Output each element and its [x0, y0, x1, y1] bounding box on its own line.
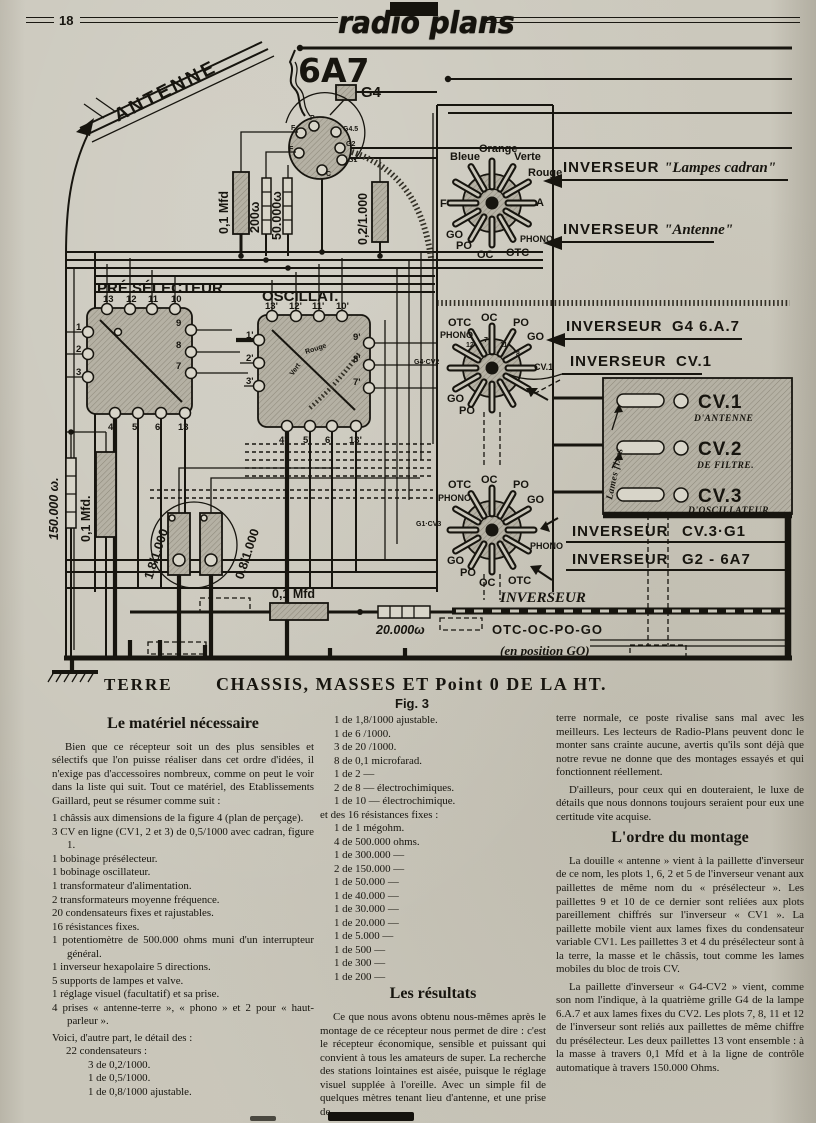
sw3-label: G1·CV3: [416, 521, 441, 528]
r150000-label: 150.000 ω.: [47, 477, 61, 540]
paragraph: Bien que ce récepteur soit un des plus s…: [52, 741, 314, 809]
paragraph: Ce que nous avons obtenu nous-mêmes aprè…: [320, 1011, 546, 1119]
oscil-pin: 8': [353, 354, 361, 365]
preselecteur-label: PRÉ SÉLECTEUR: [97, 280, 223, 297]
inverseur-cv3-detail: CV.3·G1: [682, 523, 746, 540]
sw3-label: OC: [479, 577, 496, 589]
list-item: 8 de 0,1 microfarad.: [320, 755, 546, 769]
sw3-label: OC: [481, 474, 498, 486]
sw2-num: 12: [466, 342, 474, 349]
sw2-label: CV.1: [534, 362, 553, 372]
sw3-label: GO: [447, 555, 465, 567]
sw2-label: OC: [481, 312, 498, 324]
cv1-label: CV.1: [698, 392, 743, 413]
presel-pin: 9: [176, 318, 181, 329]
presel-pin: 6: [155, 422, 160, 433]
paragraph: La douille « antenne » vient à la paille…: [556, 855, 804, 977]
r20000-label: 20.000ω: [375, 623, 425, 637]
socket-pin-g45-label: G4.5: [343, 126, 358, 133]
sw3-label: GO: [527, 494, 545, 506]
list-item: 4 de 500.000 ohms.: [320, 836, 546, 850]
sw3-label: PHONO: [530, 541, 563, 551]
arrow-underline: [543, 174, 788, 188]
sw2-num: 8: [516, 351, 520, 358]
list-item: 1 inverseur hexapolaire 5 directions.: [52, 961, 314, 975]
list-item: 1 de 0,5/1000.: [52, 1072, 314, 1086]
cv3-sub-label: D'OSCILLATEUR: [687, 506, 769, 516]
list-item: 1 de 0,8/1000 ajustable.: [52, 1086, 314, 1100]
inverseur-antenne-detail: "Antenne": [664, 222, 733, 238]
res-heading: et des 16 résistances fixes :: [320, 809, 546, 823]
list-item: 1 châssis aux dimensions de la figure 4 …: [52, 812, 314, 826]
cv1-sub-label: D'ANTENNE: [693, 414, 753, 424]
oscil-pin: 10': [336, 301, 349, 312]
presel-pin: 7: [176, 361, 181, 372]
list-item: 4 prises « antenne-terre », « phono » et…: [52, 1002, 314, 1029]
inverseur-bus-label: INVERSEUR: [499, 590, 586, 606]
list-item: 3 CV en ligne (CV1, 2 et 3) de 0,5/1000 …: [52, 826, 314, 853]
presel-pin: 4: [108, 422, 114, 433]
list-item: 1 de 10 — électrochimique.: [320, 795, 546, 809]
list-item: 3 de 0,2/1000.: [52, 1059, 314, 1073]
list-item: 1 de 300.000 —: [320, 849, 546, 863]
presel-pin: 11: [148, 294, 159, 305]
list-item: 1 de 30.000 —: [320, 903, 546, 917]
list-item: 5 supports de lampes et valve.: [52, 975, 314, 989]
presel-pin: 1: [76, 322, 82, 333]
oscil-pin: 11': [312, 301, 324, 312]
list-item: 1 de 1 mégohm.: [320, 822, 546, 836]
oscil-pin: 9': [353, 332, 361, 343]
list-item: 20 condensateurs fixes et rajustables.: [52, 907, 314, 921]
inverseur-antenne-label: INVERSEUR: [563, 221, 660, 238]
cv2-sub-label: DE FILTRE.: [696, 461, 754, 471]
left-column: Le matériel nécessaire Bien que ce récep…: [52, 714, 314, 1099]
presel-pin: 3: [76, 367, 81, 378]
list-item: 2 transformateurs moyenne fréquence.: [52, 894, 314, 908]
arrow-underline: [543, 236, 714, 250]
schematic-figure: ANTENNE 6A7 G4: [0, 0, 816, 712]
oscil-pin: 7': [353, 377, 361, 388]
list-item: 1 de 200 —: [320, 971, 546, 985]
sw1-label: Verte: [514, 151, 541, 163]
oscil-pin: 2': [246, 353, 254, 364]
oscillateur-block: [236, 258, 437, 656]
antenna-label: ANTENNE: [111, 57, 221, 127]
presel-pin: 13: [178, 422, 189, 433]
inverseur-g2-label: INVERSEUR: [572, 551, 669, 568]
paragraph: terre normale, ce poste rivalise sans ma…: [556, 712, 804, 780]
terre-label: TERRE: [104, 675, 173, 694]
sw2-label: PHONO: [440, 330, 473, 340]
oscil-pin: 3': [246, 376, 254, 387]
detail-intro: Voici, d'autre part, le détail des :: [52, 1032, 314, 1046]
sw1-label: OC: [477, 249, 494, 261]
socket-pin-c-label: C: [326, 171, 331, 178]
cap-02-label: 0,2/1.000: [356, 193, 370, 245]
sw2-label: G4·CV2: [414, 359, 439, 366]
cond-heading: 22 condensateurs :: [52, 1045, 314, 1059]
list-item: 1 de 500 —: [320, 944, 546, 958]
sw2-label: PO: [459, 405, 475, 417]
list-item: 1 de 40.000 —: [320, 890, 546, 904]
scan-artifact: [250, 1116, 276, 1121]
scan-artifact: [328, 1112, 414, 1121]
section-heading-materiel: Le matériel nécessaire: [52, 714, 314, 734]
presel-pin: 8: [176, 340, 181, 351]
list-item: 1 bobinage oscillateur.: [52, 866, 314, 880]
sw2-label: GO: [447, 393, 465, 405]
inverseur-g4-label: INVERSEUR: [566, 318, 663, 335]
list-item: 1 transformateur d'alimentation.: [52, 880, 314, 894]
sw1-label: F': [440, 198, 450, 210]
left-components: [66, 429, 452, 656]
inverseur-bus-positions: OTC-OC-PO-GO: [492, 622, 603, 637]
inverseur-cv3-label: INVERSEUR: [572, 523, 669, 540]
cap-01mfd-left-label: 0,1 Mfd.: [79, 495, 93, 542]
list-item: 1 de 300 —: [320, 957, 546, 971]
r50000-label: 50.000ω: [270, 191, 284, 240]
socket-pin-f-label: F: [291, 125, 296, 132]
magazine-page: 18 radio plans ANTENNE 6A7 G4: [0, 0, 816, 1123]
sw1-label: Bleue: [450, 151, 480, 163]
sw1-label: PO: [456, 240, 472, 252]
g4-terminal: [336, 85, 356, 100]
arrow-underline: [546, 333, 742, 347]
list-item: 1 bobinage présélecteur.: [52, 853, 314, 867]
inverseur-g2-detail: G2 - 6A7: [682, 551, 751, 568]
list-item: 1 de 6 /1000.: [320, 728, 546, 742]
list-item: 3 de 20 /1000.: [320, 741, 546, 755]
section-heading-resultats: Les résultats: [320, 984, 546, 1004]
socket-pin-g2-label: G2: [346, 141, 355, 148]
presel-pin: 10: [171, 294, 182, 305]
tube-socket: [286, 93, 365, 179]
inverseur-g4-detail: G4 6.A.7: [672, 318, 740, 335]
sw3-label: OTC: [508, 575, 531, 587]
presel-pin: 2: [76, 344, 81, 355]
section-heading-montage: L'ordre du montage: [556, 828, 804, 848]
list-item: 1 de 1,8/1000 ajustable.: [320, 714, 546, 728]
list-item: 1 de 50.000 —: [320, 876, 546, 890]
sw2-label: OTC: [448, 317, 471, 329]
cap-01mfd-top-label: 0,1 Mfd: [217, 191, 231, 234]
middle-column: 1 de 1,8/1000 ajustable. 1 de 6 /1000. 3…: [320, 714, 546, 1123]
presel-pin: 5: [132, 422, 138, 433]
pointer-arrow: [526, 388, 548, 400]
figure-caption: Fig. 3: [395, 696, 429, 711]
inverseur-cv1-detail: CV.1: [676, 353, 712, 370]
paragraph: La paillette d'inverseur « G4-CV2 » vien…: [556, 981, 804, 1076]
sw2-label: GO: [527, 331, 545, 343]
presel-pin: 13: [103, 294, 114, 305]
presel-pin: 12: [126, 294, 137, 305]
list-item: 1 réglage visuel (facultatif) et sa pris…: [52, 988, 314, 1002]
chassis-caption: CHASSIS, MASSES ET Point 0 DE LA HT.: [216, 674, 607, 694]
socket-pin-g1-label: G1: [348, 157, 357, 164]
sw2-num: 7: [484, 337, 488, 344]
list-item: 2 de 150.000 —: [320, 863, 546, 877]
sw3-label: OTC: [448, 479, 471, 491]
right-column: terre normale, ce poste rivalise sans ma…: [556, 712, 804, 1079]
list-item: 1 potentiomètre de 500.000 ohms muni d'u…: [52, 934, 314, 961]
cap-01mfd-bottom-label: 0,1 Mfd: [272, 587, 315, 601]
sw2-label: PO: [513, 317, 529, 329]
list-item: 2 de 8 — électrochimiques.: [320, 782, 546, 796]
list-item: 1 de 20.000 —: [320, 917, 546, 931]
oscil-pin: 1': [246, 330, 254, 341]
tube-label: 6A7: [298, 51, 369, 90]
list-item: 1 de 5.000 —: [320, 930, 546, 944]
oscil-pin: 12': [289, 301, 302, 312]
inverseur-lampes-label: INVERSEUR: [563, 159, 660, 176]
sw2-num: 11: [500, 342, 508, 349]
preselecteur-block: [66, 258, 248, 656]
sw1-label: A: [536, 197, 544, 209]
sw1-label: Orange: [479, 143, 518, 155]
oscil-pin: 13': [265, 301, 278, 312]
inverseur-cv1-label: INVERSEUR: [570, 353, 667, 370]
list-item: 1 de 2 —: [320, 768, 546, 782]
r200-label: 200ω: [248, 201, 262, 233]
cv2-label: CV.2: [698, 439, 743, 460]
list-item: 16 résistances fixes.: [52, 921, 314, 935]
cv3-label: CV.3: [698, 486, 743, 507]
paragraph: D'ailleurs, pour ceux qui en douteraient…: [556, 784, 804, 825]
sw1-label: OTC: [506, 247, 529, 259]
sw3-label: PO: [513, 479, 529, 491]
sw3-label: PHONO: [438, 493, 471, 503]
inverseur-lampes-detail: "Lampes cadran": [664, 160, 776, 176]
sw3-label: PO: [460, 567, 476, 579]
socket-pin-p-label: P: [310, 115, 315, 122]
